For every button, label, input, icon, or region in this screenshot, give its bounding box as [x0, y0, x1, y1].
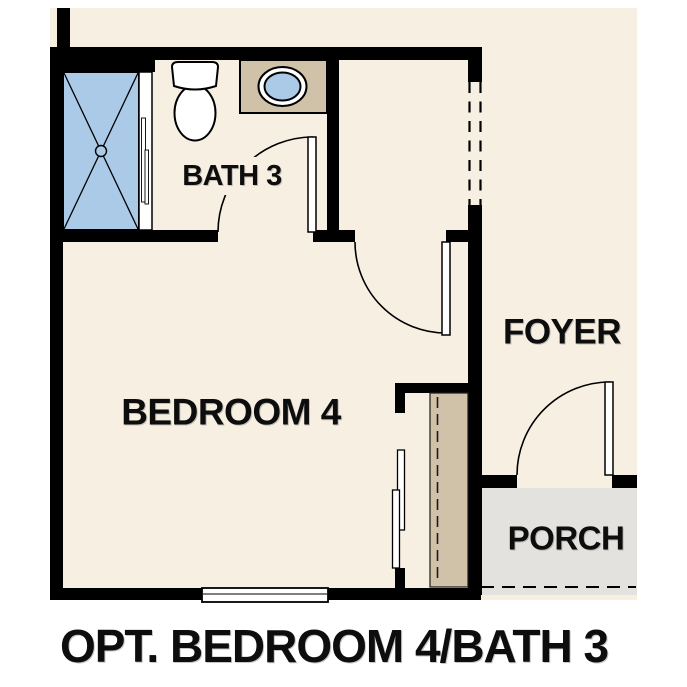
floor-plan-svg: BATH 3 BEDROOM 4 FOYER PORCH OPT. BEDROO… [0, 0, 687, 687]
plan-caption: OPT. BEDROOM 4/BATH 3 [60, 620, 608, 672]
bedroom-door-leaf [442, 242, 450, 335]
porch-room-label: PORCH [508, 520, 625, 557]
wall-foyer-main [468, 205, 482, 595]
wall-bath-east [327, 47, 339, 242]
floor-plan-page: BATH 3 BEDROOM 4 FOYER PORCH OPT. BEDROO… [0, 0, 687, 687]
shower-drain [96, 146, 107, 157]
wall-porch-left [468, 475, 517, 488]
wall-door-pier [313, 230, 355, 242]
wall-closet-top [395, 383, 468, 393]
shower-glass-panel-2 [145, 150, 149, 204]
bedroom-room-label: BEDROOM 4 [121, 392, 342, 433]
closet-bypass-door-2 [393, 490, 400, 568]
wall-closet-stub-bottom [395, 568, 405, 588]
wall-porch-right [612, 475, 637, 488]
closet-floor [430, 393, 468, 587]
wall-top [50, 47, 482, 60]
foyer-room-label: FOYER [503, 313, 621, 352]
window-frame [202, 588, 328, 602]
entry-door-leaf [605, 382, 613, 475]
wall-left-exterior [50, 47, 63, 600]
bath-door-leaf [308, 137, 316, 232]
toilet-icon [172, 62, 218, 141]
wall-upper-left-stub [57, 8, 70, 47]
toilet-tank [172, 62, 218, 90]
shower-icon [63, 72, 152, 230]
wall-foyer-top [468, 47, 482, 82]
window-icon [202, 588, 328, 602]
toilet-bowl [175, 86, 216, 141]
sink-basin [265, 73, 301, 101]
bath-room-label: BATH 3 [182, 160, 282, 192]
wall-closet-stub-top [395, 393, 405, 413]
wall-bath-south [50, 230, 218, 242]
sink-icon [240, 60, 327, 113]
